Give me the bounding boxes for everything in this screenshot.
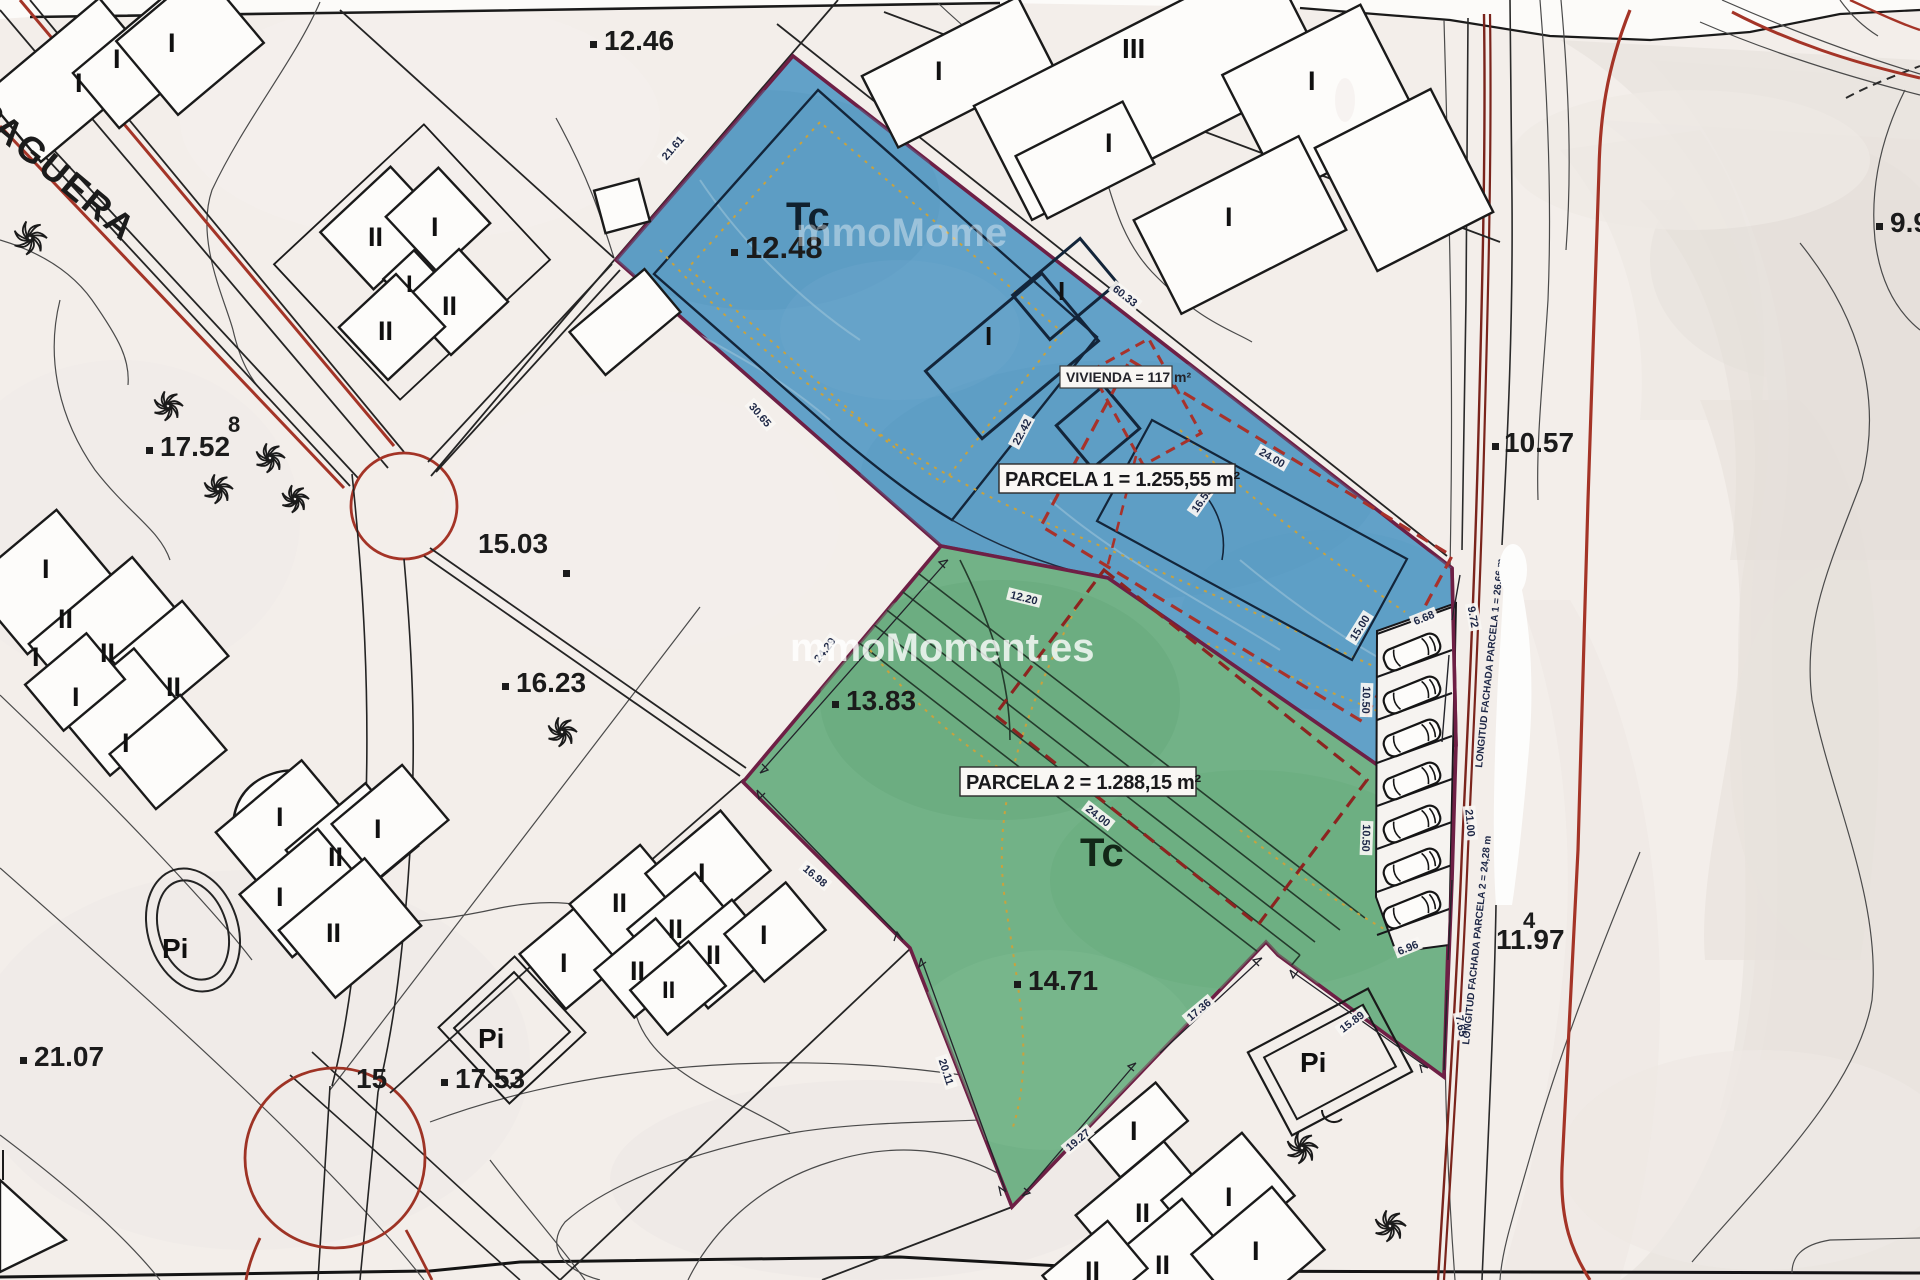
svg-text:I: I [1130, 1116, 1138, 1146]
svg-text:I: I [560, 948, 568, 978]
svg-text:I: I [72, 682, 80, 712]
svg-text:I: I [1225, 202, 1233, 232]
svg-text:II: II [326, 918, 341, 948]
svg-text:14.71: 14.71 [1028, 965, 1098, 996]
svg-text:21.00: 21.00 [1462, 809, 1476, 837]
svg-text:II: II [166, 672, 181, 702]
svg-text:II: II [442, 291, 457, 321]
svg-text:I: I [276, 802, 284, 832]
svg-text:4: 4 [1523, 908, 1536, 933]
svg-text:II: II [662, 977, 675, 1004]
svg-text:II: II [1155, 1250, 1170, 1280]
svg-text:8: 8 [228, 412, 240, 437]
svg-text:II: II [378, 316, 393, 346]
svg-text:I: I [32, 642, 40, 672]
svg-text:Pi: Pi [162, 933, 188, 964]
svg-text:I: I [431, 212, 439, 242]
svg-text:II: II [612, 888, 627, 918]
svg-text:I: I [1105, 128, 1113, 158]
svg-text:I: I [276, 882, 284, 912]
svg-text:I: I [760, 920, 768, 950]
svg-text:I: I [113, 44, 121, 74]
svg-text:9.9: 9.9 [1890, 207, 1920, 238]
svg-text:mmoMoment.es: mmoMoment.es [790, 626, 1095, 670]
svg-text:I: I [168, 28, 176, 58]
svg-text:II: II [368, 222, 383, 252]
svg-text:Pi: Pi [478, 1023, 504, 1054]
svg-text:I: I [1252, 1236, 1260, 1266]
svg-text:10.50: 10.50 [1359, 686, 1372, 714]
svg-text:III: III [1122, 33, 1145, 64]
svg-text:10.57: 10.57 [1504, 427, 1574, 458]
svg-text:15: 15 [356, 1063, 387, 1094]
svg-text:VIVIENDA = 117 m²: VIVIENDA = 117 m² [1066, 369, 1191, 385]
svg-text:12.46: 12.46 [604, 25, 674, 56]
svg-text:II: II [58, 604, 73, 634]
svg-text:I: I [75, 68, 83, 98]
svg-text:II: II [706, 940, 721, 970]
svg-text:II: II [1085, 1256, 1100, 1280]
svg-text:II: II [100, 638, 115, 668]
svg-text:PARCELA 2 = 1.288,15 m²: PARCELA 2 = 1.288,15 m² [966, 772, 1202, 794]
svg-text:I: I [122, 728, 130, 758]
svg-text:15.03: 15.03 [478, 528, 548, 559]
svg-text:II: II [630, 956, 645, 986]
svg-text:17.52: 17.52 [160, 431, 230, 462]
svg-text:PARCELA 1 = 1.255,55 m²: PARCELA 1 = 1.255,55 m² [1005, 469, 1241, 491]
svg-text:I: I [1058, 276, 1065, 306]
svg-text:I: I [374, 814, 382, 844]
svg-text:mmoMome: mmoMome [796, 211, 1007, 255]
svg-text:Tc: Tc [1080, 831, 1124, 875]
svg-text:I: I [406, 271, 413, 298]
svg-text:Pi: Pi [1300, 1047, 1326, 1078]
svg-text:10.50: 10.50 [1359, 824, 1372, 852]
svg-text:I: I [1225, 1182, 1233, 1212]
svg-text:21.07: 21.07 [34, 1041, 104, 1072]
svg-text:I: I [985, 321, 992, 351]
svg-text:II: II [1135, 1198, 1150, 1228]
svg-text:II: II [668, 914, 683, 944]
svg-text:I: I [1308, 66, 1316, 96]
svg-text:II: II [328, 842, 343, 872]
svg-text:I: I [698, 858, 706, 888]
svg-text:I: I [935, 56, 943, 86]
svg-text:17.53: 17.53 [455, 1063, 525, 1094]
svg-text:13.83: 13.83 [846, 685, 916, 716]
svg-text:I: I [42, 554, 50, 584]
svg-text:16.23: 16.23 [516, 667, 586, 698]
